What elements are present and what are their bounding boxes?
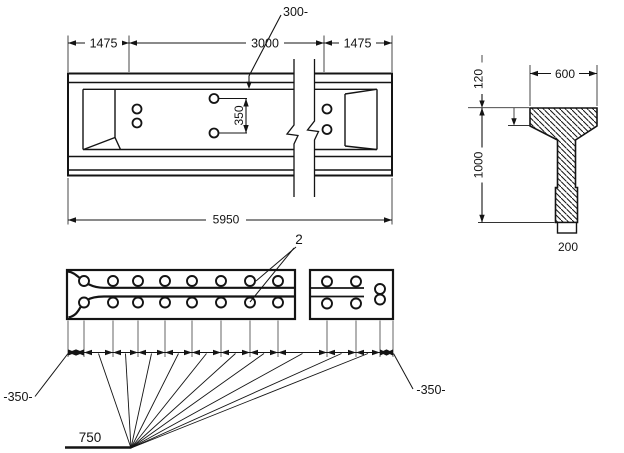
dim-arrow [270, 350, 278, 356]
hole [273, 298, 283, 308]
hole [273, 276, 283, 286]
girder-section [530, 108, 597, 223]
dim-arrow [184, 350, 192, 356]
dim-arrow [250, 350, 258, 356]
dim-arrow [348, 350, 356, 356]
tendon-bottom [69, 297, 296, 318]
plan-dimension-chain: -350- -350- 750 [3, 321, 445, 449]
hole [187, 276, 197, 286]
dim-arrow [68, 40, 76, 46]
fan-leader-line [131, 354, 303, 449]
dim-arrow [384, 217, 392, 223]
hole [210, 129, 219, 138]
callout-2-text: 2 [295, 232, 303, 247]
hole [187, 298, 197, 308]
hole [79, 298, 89, 308]
dim-200: 200 [558, 240, 578, 254]
hole [160, 276, 170, 286]
dim-3000: 3000 [251, 37, 279, 51]
beam-flange-lines [68, 83, 392, 171]
callout-leader [250, 248, 294, 302]
fan-leader-line [131, 354, 152, 449]
dim-arrow-up [479, 108, 484, 116]
hole [210, 94, 219, 103]
hole [133, 276, 143, 286]
extension-lines-top [68, 36, 392, 225]
dim-arrow [138, 350, 146, 356]
hole [375, 295, 385, 305]
dim-arrow-up [243, 99, 248, 107]
cross-section-dimensions: 600 120 1000 200 [468, 55, 597, 254]
dim-arrow [530, 71, 538, 77]
hole [79, 276, 89, 286]
plan-view: 2 -350- -350- 750 [3, 232, 445, 448]
hole [245, 276, 255, 286]
hole [323, 105, 332, 114]
dim-arrow [221, 350, 229, 356]
dim-arrow [242, 350, 250, 356]
dim-arrow [589, 71, 597, 77]
dim-1475-right: 1475 [344, 37, 372, 51]
fan-leader-line [131, 354, 207, 449]
hole [108, 276, 118, 286]
dim-arrow [130, 350, 138, 356]
leader-arrow [246, 82, 251, 89]
hole [323, 125, 332, 134]
leader-350-right [394, 354, 414, 390]
hole [322, 299, 332, 309]
dim-1475-left: 1475 [90, 37, 118, 51]
dim-arrow [213, 350, 221, 356]
hole [245, 298, 255, 308]
drawing-canvas: 1475 3000 1475 5950 300- 350 [0, 0, 624, 453]
hole [351, 277, 361, 287]
dim-arrow [192, 350, 200, 356]
cross-section-view: 600 120 1000 200 [468, 55, 597, 254]
dim-350: 350 [219, 99, 249, 134]
label-300: 300- [283, 5, 308, 19]
hole [322, 277, 332, 287]
dim-arrow [84, 350, 92, 356]
dim-arrow [165, 350, 173, 356]
dim-arrow [327, 350, 335, 356]
dim-arrow-down [511, 118, 516, 125]
dim-5950: 5950 [213, 213, 240, 227]
spacing-fan-leaders [99, 354, 369, 449]
dim-1000: 1000 [472, 151, 486, 178]
side-view-dimensions: 1475 3000 1475 5950 300- 350 [68, 5, 392, 227]
beam-outline [68, 73, 392, 177]
fan-leader-line [131, 354, 342, 449]
dim-750: 750 [79, 430, 102, 445]
plan-view-holes [79, 276, 385, 309]
hole [216, 298, 226, 308]
dim-arrow [319, 350, 327, 356]
tendon-top [68, 272, 295, 288]
dim-arrow [129, 40, 137, 46]
hole [133, 105, 142, 114]
fan-leader-line [131, 354, 236, 449]
dim-arrow [372, 350, 380, 356]
dim-arrow [356, 350, 364, 356]
dim-arrow [113, 350, 121, 356]
dim-arrow [316, 40, 324, 46]
fan-leader-line [131, 354, 264, 449]
dim-arrow [278, 350, 286, 356]
hole [133, 119, 142, 128]
fan-leader-line [131, 354, 179, 449]
hole [216, 276, 226, 286]
dim-600: 600 [555, 67, 575, 81]
dim-120: 120 [472, 69, 486, 89]
leader-350-left [35, 354, 68, 397]
dim-arrow [324, 40, 332, 46]
dim-arrow [157, 350, 165, 356]
technical-drawing: 1475 3000 1475 5950 300- 350 [0, 0, 624, 453]
dim-350-text: 350 [232, 105, 246, 125]
dim-350-left: -350- [3, 390, 32, 404]
hole [133, 298, 143, 308]
hole [108, 298, 118, 308]
hole [351, 299, 361, 309]
dim-arrow [105, 350, 113, 356]
side-elevation-view [68, 59, 392, 197]
dim-arrow-down [479, 101, 484, 108]
fan-leader-line [131, 354, 368, 449]
bearing-plate [558, 223, 577, 234]
hole [375, 284, 385, 294]
dim-350-right: -350- [416, 383, 445, 397]
dim-arrow-down [479, 215, 484, 223]
dim-arrow [121, 40, 129, 46]
hole [160, 298, 170, 308]
dim-arrow [68, 217, 76, 223]
dim-arrow [384, 40, 392, 46]
